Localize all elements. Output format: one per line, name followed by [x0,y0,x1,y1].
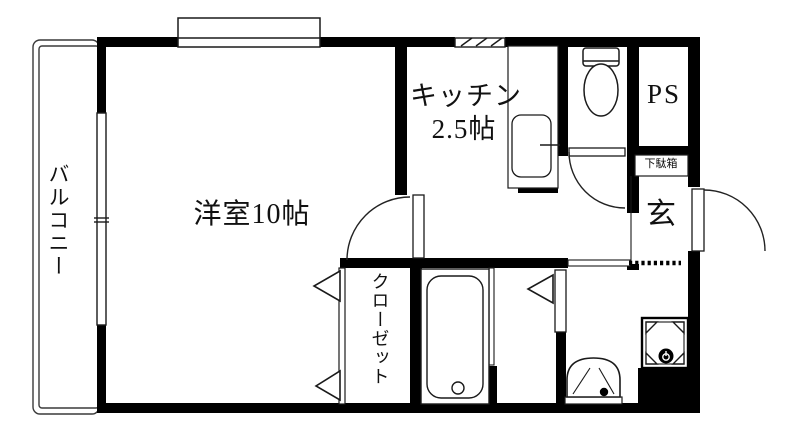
toilet-door-icon [569,148,625,208]
shoe-cabinet-label: 下駄箱 [645,159,678,171]
bathtub-icon [421,269,489,404]
pipe-space-label: PS [647,80,681,108]
floor-plan: 洋室10帖 キッチン 2.5帖 バルコニー クローゼット PS 玄 下駄箱 co… [0,0,800,432]
living-room-label: 洋室10帖 [193,200,310,229]
floor-plan-drawing [0,0,800,432]
entrance-label: 玄 [646,199,676,231]
washing-machine-pan-icon [642,318,688,368]
bay-window-icon [178,18,320,47]
balcony-window-icon [94,113,109,325]
kitchen-sink-icon [508,46,560,188]
closet-folding-doors-icon [314,268,345,404]
closet-label: クローゼット [370,272,389,386]
kitchen-label: キッチン [410,82,522,110]
toilet-icon [583,48,619,116]
bath-folding-door-icon [528,270,566,332]
kitchen-size-label: 2.5帖 [432,115,497,143]
wash-basin-icon [565,358,622,404]
room-door-icon [347,195,424,260]
balcony-label: バルコニー [47,163,69,278]
entry-door-icon [692,189,765,251]
louver-window-icon [455,38,505,47]
